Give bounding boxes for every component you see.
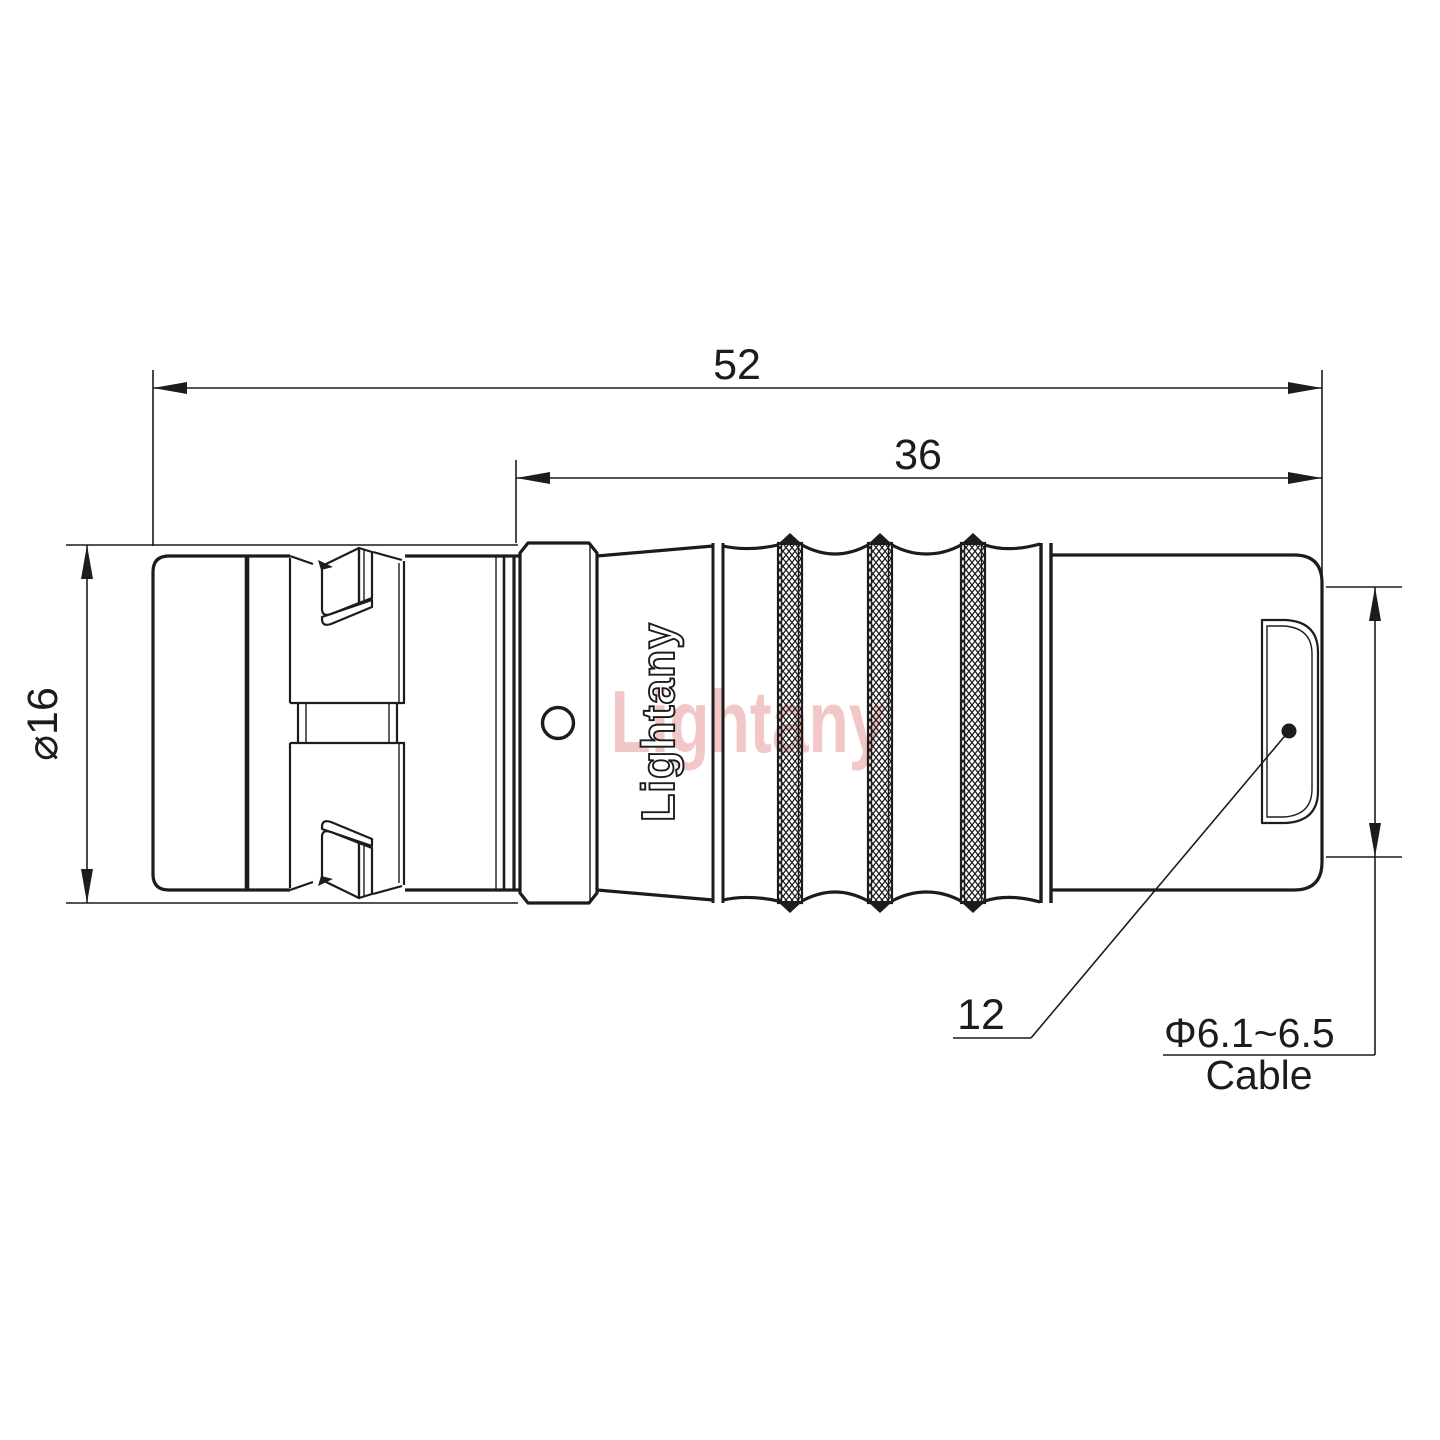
cable-spec-label: Φ6.1~6.5 <box>1164 1010 1335 1056</box>
connector-technical-drawing: Lightany <box>0 0 1440 1440</box>
knurl-band <box>777 533 803 913</box>
dim-36-label: 36 <box>894 431 942 479</box>
dim-12-label: 12 <box>957 991 1005 1039</box>
dimension-diameter: ⌀16 <box>19 545 518 903</box>
mid-collar <box>520 543 597 903</box>
dim-52-label: 52 <box>713 341 761 389</box>
dim-diameter-label: ⌀16 <box>19 687 67 761</box>
knurl-band <box>867 533 893 913</box>
cable-word-label: Cable <box>1205 1052 1312 1098</box>
dimension-front-length: 36 <box>516 431 1322 543</box>
cable-boot <box>1262 620 1318 823</box>
rear-body <box>1052 555 1322 890</box>
barrel-engraving-text: Lightany <box>632 622 684 822</box>
bayonet-lug-top <box>322 548 372 625</box>
collar-hole <box>543 708 574 739</box>
dimension-overall-length: 52 <box>153 341 1322 575</box>
bayonet-slot-top <box>290 552 404 703</box>
dimension-cable-entry: Φ6.1~6.5 Cable <box>1163 587 1402 1098</box>
bayonet-slot-bottom <box>290 743 404 894</box>
knurl-band <box>960 533 986 913</box>
bayonet-slot-bridge <box>290 703 405 743</box>
dimension-boot-width: 12 <box>953 731 1289 1039</box>
bayonet-lug-bottom <box>322 821 372 898</box>
bayonet-shell <box>153 548 520 898</box>
